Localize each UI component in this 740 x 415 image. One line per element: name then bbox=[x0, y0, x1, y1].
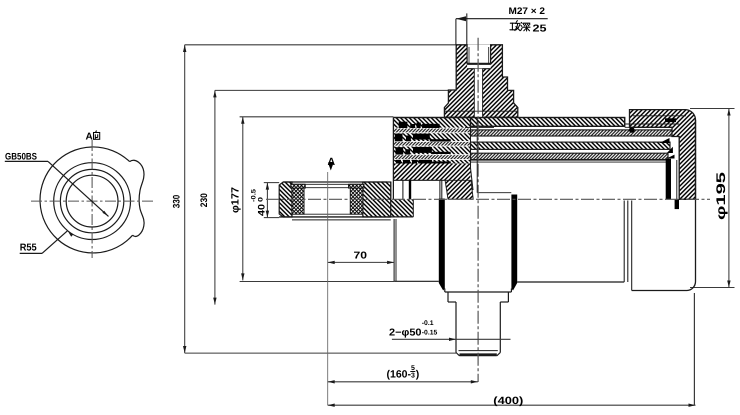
svg-text:-0.1: -0.1 bbox=[422, 320, 434, 327]
svg-text:GB50BS: GB50BS bbox=[5, 152, 37, 163]
svg-text:M27 × 2: M27 × 2 bbox=[509, 6, 546, 17]
svg-text:330: 330 bbox=[172, 195, 183, 209]
svg-text:(160-: (160- bbox=[387, 368, 412, 380]
svg-text:R55: R55 bbox=[20, 243, 37, 254]
svg-text:(400): (400) bbox=[493, 395, 523, 407]
svg-text:φ177: φ177 bbox=[230, 187, 242, 213]
svg-text:25: 25 bbox=[533, 23, 548, 34]
svg-text:230: 230 bbox=[199, 193, 210, 207]
svg-text:0: 0 bbox=[258, 196, 265, 202]
svg-text:3: 3 bbox=[411, 373, 415, 380]
svg-text:40: 40 bbox=[257, 204, 268, 216]
svg-text:-0.5: -0.5 bbox=[251, 189, 258, 202]
svg-text:): ) bbox=[416, 368, 420, 380]
svg-text:5: 5 bbox=[411, 365, 415, 372]
svg-text:70: 70 bbox=[354, 250, 368, 261]
svg-text:A: A bbox=[86, 132, 93, 143]
svg-text:-0.15: -0.15 bbox=[422, 330, 438, 337]
svg-text:φ195: φ195 bbox=[714, 172, 728, 220]
svg-text:2−φ50: 2−φ50 bbox=[389, 328, 422, 339]
